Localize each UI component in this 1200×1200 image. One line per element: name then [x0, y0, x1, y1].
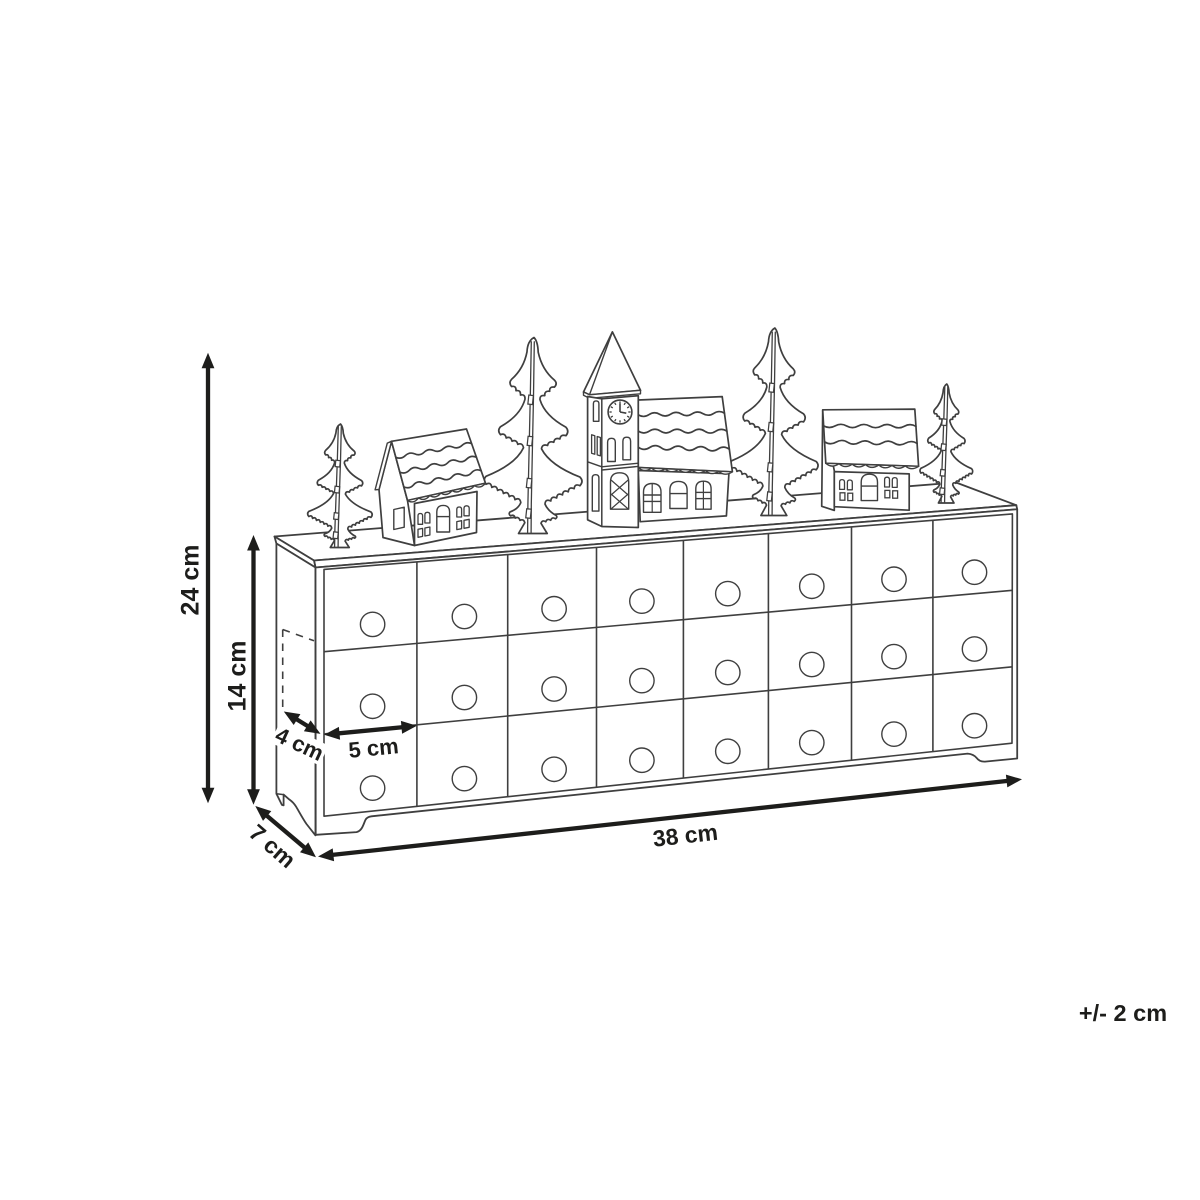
svg-text:5 cm: 5 cm: [347, 733, 399, 763]
svg-text:14 cm: 14 cm: [224, 641, 252, 712]
svg-text:24 cm: 24 cm: [177, 545, 205, 616]
svg-text:+/- 2 cm: +/- 2 cm: [1079, 1000, 1167, 1026]
